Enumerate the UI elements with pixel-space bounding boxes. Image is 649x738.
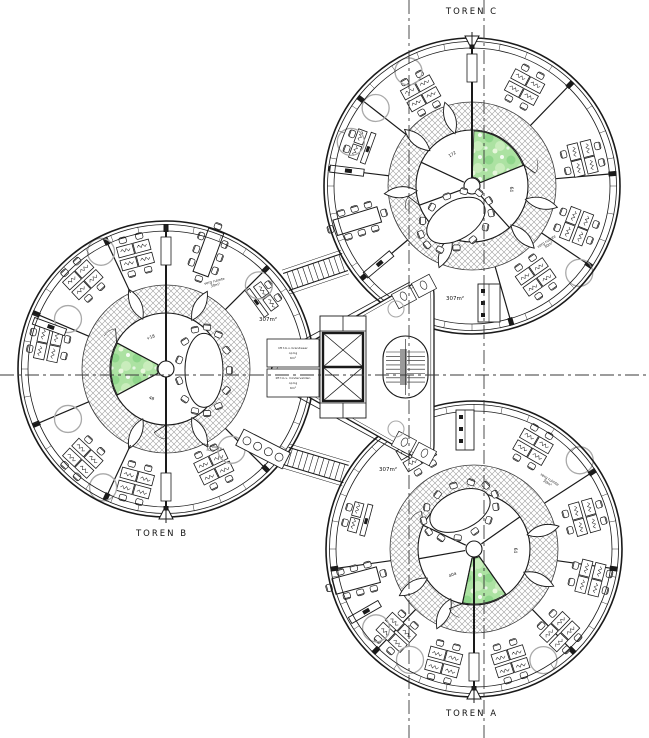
tower-toren-c: 17264 [323, 32, 620, 334]
tower-label-toren-a: TOREN A [446, 709, 498, 719]
link-bridge [282, 250, 349, 294]
tower-toren-a: 6440a [322, 401, 622, 703]
svg-text:op bg: op bg [289, 351, 298, 355]
area-label-toren-c: 307m² [446, 296, 464, 302]
pantry [456, 410, 474, 450]
svg-text:op bg: op bg [289, 381, 298, 385]
svg-text:6m²: 6m² [290, 356, 297, 360]
svg-text:6m²: 6m² [290, 386, 297, 390]
wedge-tag: 64 [509, 187, 514, 193]
wedge-tag: 64 [513, 548, 518, 554]
svg-text:lift t.b.v. brandweer: lift t.b.v. brandweer [278, 346, 308, 350]
svg-text:lift t.b.v. mindervaliden: lift t.b.v. mindervaliden [276, 376, 311, 380]
tower-label-toren-b: TOREN B [136, 529, 188, 539]
link-bridge [282, 444, 349, 486]
tower-label-toren-c: TOREN C [446, 7, 498, 17]
floor-plan-svg: 17264+18486440alift t.b.v. brandweerop b… [0, 0, 649, 738]
area-label-toren-a: 307m² [379, 467, 397, 473]
floor-plan: 17264+18486440alift t.b.v. brandweerop b… [0, 0, 649, 738]
area-label-toren-b: 307m² [259, 317, 277, 323]
pantry [478, 284, 500, 322]
